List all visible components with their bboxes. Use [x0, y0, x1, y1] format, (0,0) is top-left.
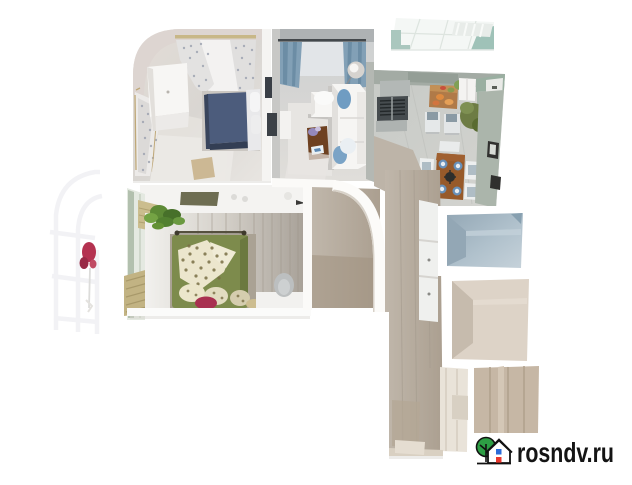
svg-text:rosndv.ru: rosndv.ru: [517, 437, 614, 468]
